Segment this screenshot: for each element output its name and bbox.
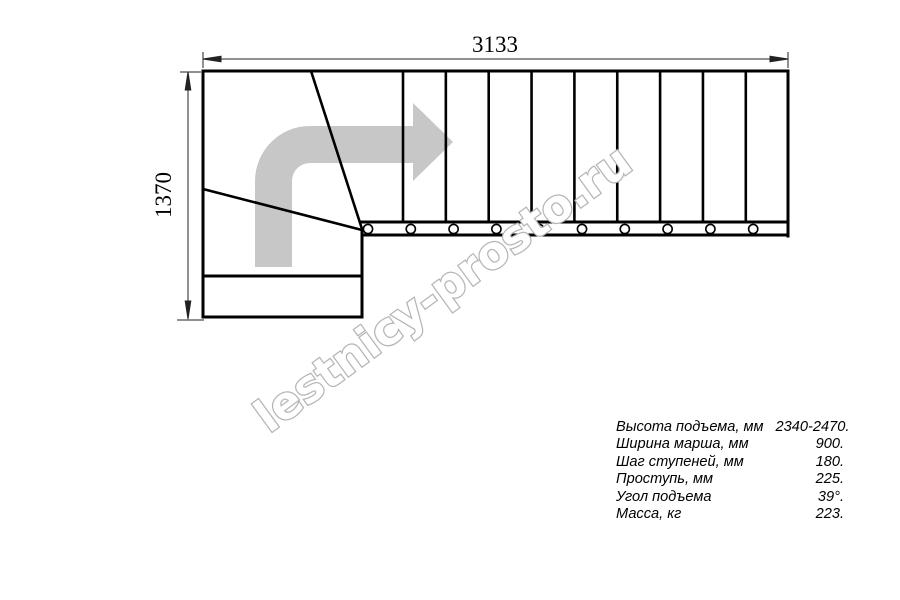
bolt-icon	[706, 224, 715, 233]
watermark-text: lestnicy-prosto.ru	[244, 134, 641, 443]
direction-arrow-icon	[255, 103, 453, 267]
spec-row: Масса, кг 223.	[616, 506, 844, 523]
spec-row: Шаг ступеней, мм 180.	[616, 454, 844, 471]
height-dimension-label: 1370	[151, 172, 176, 218]
bolt-icon	[449, 224, 458, 233]
bolt-icon	[406, 224, 415, 233]
spec-table: Высота подъема, мм 2340-2470. Ширина мар…	[616, 419, 844, 523]
spec-value: 39°.	[818, 489, 844, 506]
spec-label: Угол подъема	[616, 489, 711, 506]
spec-label: Проступь, мм	[616, 471, 713, 488]
width-arrow-left-icon	[203, 56, 221, 62]
spec-value: 900.	[816, 436, 844, 453]
bolt-icon	[749, 224, 758, 233]
spec-label: Высота подъема, мм	[616, 419, 764, 436]
spec-row: Проступь, мм 225.	[616, 471, 844, 488]
spec-value: 223.	[816, 506, 844, 523]
spec-row: Угол подъема 39°.	[616, 489, 844, 506]
spec-row: Ширина марша, мм 900.	[616, 436, 844, 453]
spec-value: 225.	[816, 471, 844, 488]
spec-label: Шаг ступеней, мм	[616, 454, 744, 471]
width-dimension-label: 3133	[472, 32, 518, 57]
spec-value: 180.	[816, 454, 844, 471]
spec-label: Ширина марша, мм	[616, 436, 749, 453]
height-arrow-top-icon	[185, 72, 191, 90]
spec-row: Высота подъема, мм 2340-2470.	[616, 419, 844, 436]
stair-drawing-page: 3133 1370 lestnicy-prosto.ru Высота подъ…	[0, 0, 900, 600]
height-arrow-bottom-icon	[185, 301, 191, 319]
spec-value: 2340-2470.	[776, 419, 850, 436]
bolt-icon	[577, 224, 586, 233]
bolt-icon	[620, 224, 629, 233]
spec-label: Масса, кг	[616, 506, 681, 523]
bolt-icon	[363, 224, 372, 233]
bolt-icon	[663, 224, 672, 233]
width-arrow-right-icon	[770, 56, 788, 62]
